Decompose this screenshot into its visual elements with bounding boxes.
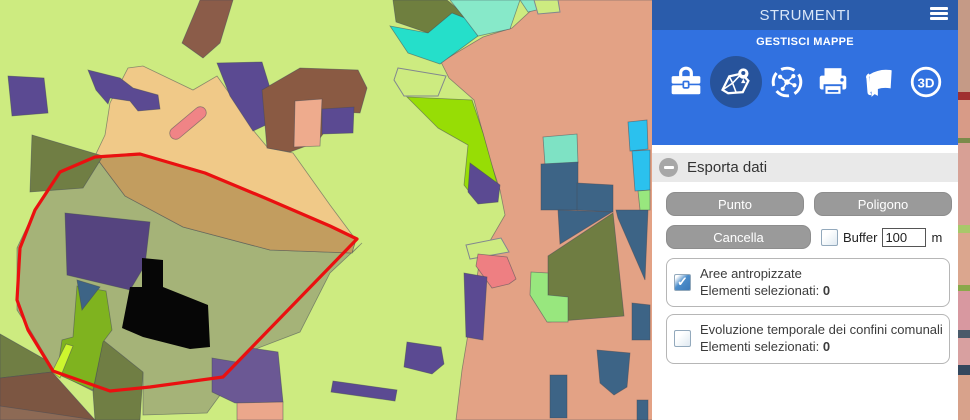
buffer-checkbox[interactable] xyxy=(821,229,838,246)
panel-title: STRUMENTI xyxy=(759,7,850,24)
layer-name: Aree antropizzate xyxy=(700,266,830,283)
layer-checkbox[interactable] xyxy=(674,330,691,347)
toolbox-icon[interactable] xyxy=(664,60,708,104)
export-section-header: Esporta dati xyxy=(652,153,958,182)
panel-header: STRUMENTI xyxy=(652,0,958,30)
collapse-minus-icon[interactable] xyxy=(659,158,678,177)
toolbar-subtitle: GESTISCI MAPPE xyxy=(652,30,958,48)
layer-checkbox[interactable] xyxy=(674,274,691,291)
cancella-button[interactable]: Cancella xyxy=(666,225,811,249)
layer-row-aree-antropizzate[interactable]: Aree antropizzate Elementi selezionati: … xyxy=(666,258,950,307)
section-title: Esporta dati xyxy=(687,159,767,176)
poligono-button[interactable]: Poligono xyxy=(814,192,952,216)
layer-selected-count: Elementi selezionati: 0 xyxy=(700,339,943,356)
svg-text:3D: 3D xyxy=(917,75,934,90)
layer-row-evoluzione-confini[interactable]: Evoluzione temporale dei confini comunal… xyxy=(666,314,950,363)
layer-name: Evoluzione temporale dei confini comunal… xyxy=(700,322,943,339)
network-icon[interactable] xyxy=(765,60,809,104)
tools-panel: STRUMENTI GESTISCI MAPPE xyxy=(652,0,958,420)
book-icon[interactable] xyxy=(858,60,902,104)
buffer-label: Buffer xyxy=(843,230,877,245)
app-window: STRUMENTI GESTISCI MAPPE xyxy=(0,0,970,420)
layer-selected-count: Elementi selezionati: 0 xyxy=(700,283,830,300)
map-layers-icon[interactable] xyxy=(710,56,762,108)
map-edge-strip xyxy=(958,0,970,420)
hamburger-menu-icon[interactable] xyxy=(930,7,948,22)
buffer-unit: m xyxy=(931,230,942,245)
buffer-input[interactable] xyxy=(882,228,926,247)
toolbar: GESTISCI MAPPE xyxy=(652,30,958,145)
print-icon[interactable] xyxy=(811,60,855,104)
punto-button[interactable]: Punto xyxy=(666,192,804,216)
export-body: Punto Poligono Cancella Buffer m Aree an… xyxy=(652,182,958,364)
threed-icon[interactable]: 3D xyxy=(904,60,948,104)
